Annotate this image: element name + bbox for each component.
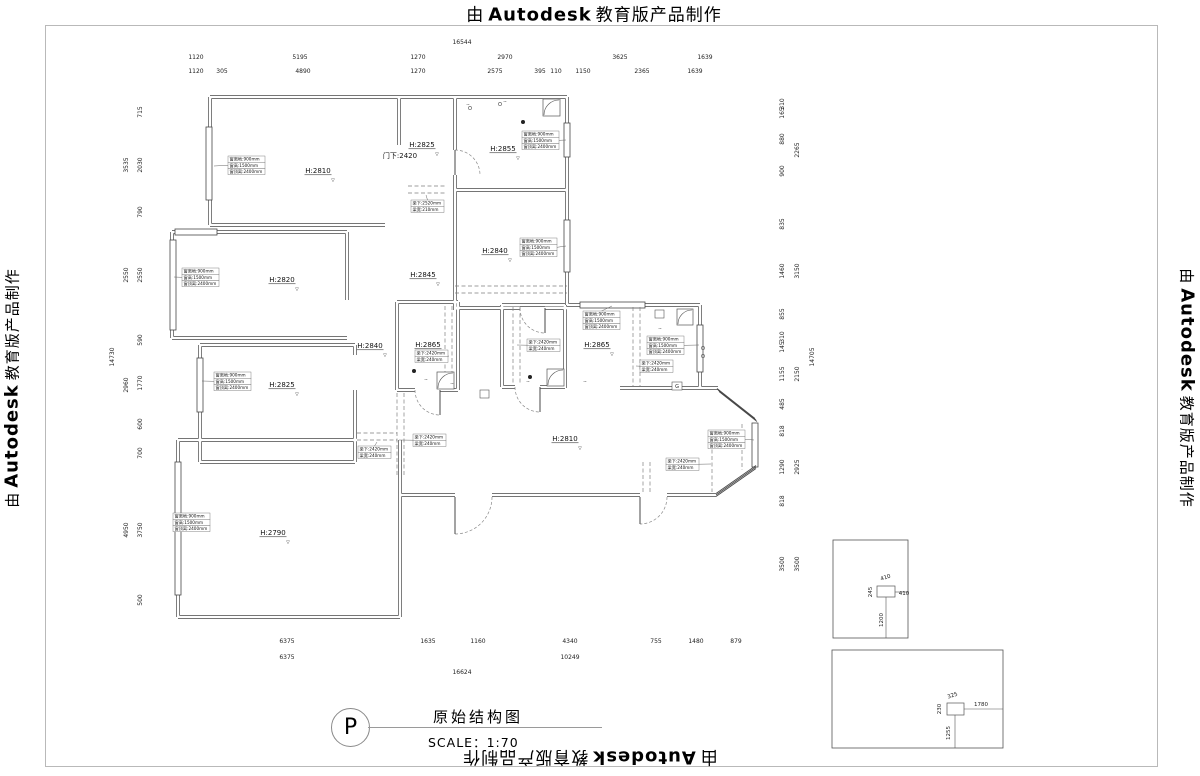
annotation-text: 梁宽:240mm xyxy=(642,366,668,373)
annotation-text: 窗离地:900mm xyxy=(216,372,246,379)
annotation-leader xyxy=(214,165,228,166)
[object Object] xyxy=(783,446,788,451)
[object Object] xyxy=(356,58,361,63)
dimension-label: 700 xyxy=(137,447,144,459)
[object Object] xyxy=(783,152,788,157)
fixture-mark: ~ xyxy=(658,327,662,332)
bay-window-line xyxy=(716,469,756,497)
annotation-text: 梁宽:240mm xyxy=(417,356,443,363)
door-swing-arc xyxy=(415,390,440,415)
annotation-text: 窗高:1500mm xyxy=(175,519,204,526)
detail-dimension-label: 1255 xyxy=(946,726,952,740)
bay-window-line xyxy=(716,467,756,495)
dimension-label: 879 xyxy=(730,638,742,645)
door-swing-arc xyxy=(520,308,545,333)
dimension-label: 1270 xyxy=(410,68,425,75)
annotation-text: 窗顶离:2400mm xyxy=(175,525,208,532)
[object Object] xyxy=(666,72,671,77)
elevation-mark: ▽ xyxy=(331,179,335,184)
dimension-label: 6375 xyxy=(279,654,294,661)
window xyxy=(752,423,758,467)
dimensions: 1654411205195127029703625163911203054890… xyxy=(109,39,819,679)
drawing-title: 原始结构图 xyxy=(433,706,523,727)
[object Object] xyxy=(798,208,803,213)
[object Object] xyxy=(206,72,211,77)
annotation-text: 窗高:1500mm xyxy=(710,436,739,443)
detail-inner-box xyxy=(947,703,964,715)
dimension-label: 855 xyxy=(779,308,786,320)
annotation-text: 梁宽:240mm xyxy=(415,440,441,447)
dimension-label: 2925 xyxy=(794,459,801,474)
dimension-label: 790 xyxy=(137,206,144,218)
[object Object] xyxy=(454,72,459,77)
[object Object] xyxy=(245,58,250,63)
dimension-label: 395 xyxy=(534,68,546,75)
dimension-label: 1635 xyxy=(420,638,435,645)
drawing-scale: SCALE：1:70 xyxy=(428,732,519,751)
room-height-label: H:2865 xyxy=(415,341,440,349)
annotation-text: 窗顶离:2400mm xyxy=(184,280,217,287)
dimension-label: 2365 xyxy=(634,68,649,75)
annotation-text: 窗离地:900mm xyxy=(710,430,740,437)
[object Object] xyxy=(127,217,132,222)
annotation-text: 窗顶离:2400mm xyxy=(524,143,557,150)
[object Object] xyxy=(141,436,146,441)
[object Object] xyxy=(783,290,788,295)
window xyxy=(170,240,176,330)
[object Object] xyxy=(798,418,803,423)
dimension-label: 6375 xyxy=(279,638,294,645)
room-height-label: H:2825 xyxy=(269,381,294,389)
bay-window-line xyxy=(716,466,756,494)
dimension-chain-top-row1: 112051951270297036251639 xyxy=(174,54,747,64)
[object Object] xyxy=(141,241,146,246)
dimension-label: 2150 xyxy=(794,366,801,381)
bay-window-line xyxy=(719,392,757,422)
dimension-chain-bottom-row2: 637510249 xyxy=(174,654,750,664)
[object Object] xyxy=(783,195,788,200)
annotation-text: 窗离地:900mm xyxy=(230,156,260,163)
dimension-chain-left-mid: 3535255029604950 xyxy=(123,97,133,617)
room-height-label: H:2840 xyxy=(357,342,382,350)
dimension-label: 900 xyxy=(779,165,786,177)
annotation-text: 窗离地:900mm xyxy=(649,336,679,343)
fixture-ring xyxy=(498,102,501,105)
[object Object] xyxy=(783,123,788,128)
[object Object] xyxy=(141,489,146,494)
[object Object] xyxy=(521,642,526,647)
[object Object] xyxy=(798,513,803,518)
[object Object] xyxy=(783,245,788,250)
annotation-text: 窗离地:900mm xyxy=(522,238,552,245)
[object Object] xyxy=(127,455,132,460)
dimension-label: 590 xyxy=(137,334,144,346)
dimension-label: 1120 xyxy=(188,54,203,61)
room-height-label: H:2825 xyxy=(409,141,434,149)
[object Object] xyxy=(783,415,788,420)
dimension-chain-left-total: 14730 xyxy=(109,97,119,617)
drain-dot xyxy=(528,375,532,379)
shower-basin xyxy=(543,99,560,116)
[object Object] xyxy=(141,359,146,364)
room-height-label: H:2790 xyxy=(260,529,285,537)
[object Object] xyxy=(358,72,363,77)
dimension-chain-top-total: 16544 xyxy=(174,39,715,49)
windows xyxy=(170,123,758,595)
dimension-label: 14705 xyxy=(809,347,816,366)
dimension-chain-bottom-row1: 63751635116043407551480879 xyxy=(174,638,750,648)
dimension-label: 2575 xyxy=(487,68,502,75)
fixture-mark: ~ xyxy=(424,378,428,383)
dimension-label: 1290 xyxy=(779,459,786,474)
dimension-label: 165 xyxy=(779,107,786,119)
annotation-text: 窗顶离:2400mm xyxy=(710,442,743,449)
annotation-leader xyxy=(426,195,428,200)
fixture-mark: ~ xyxy=(583,380,587,385)
annotation-text: 梁下:2420mm xyxy=(415,434,444,441)
dimension-label: 4950 xyxy=(123,522,130,537)
dimension-label: 485 xyxy=(779,398,786,410)
door-swing-arc xyxy=(640,497,667,524)
drain-dot xyxy=(412,369,416,373)
room-height-label: H:2855 xyxy=(490,145,515,153)
dimension-label: 500 xyxy=(137,594,144,606)
room-height-label: H:2810 xyxy=(305,167,330,175)
[object Object] xyxy=(610,72,615,77)
elevation-mark: ▽ xyxy=(578,447,582,452)
[object Object] xyxy=(610,642,615,647)
dimension-label: 4890 xyxy=(295,68,310,75)
[object Object] xyxy=(783,386,788,391)
detail-dimension-label: 1780 xyxy=(974,702,988,708)
shower-basin xyxy=(547,369,564,386)
dimension-label: 3500 xyxy=(779,556,786,571)
dimension-label: 880 xyxy=(779,133,786,145)
annotation-text: 窗离地:900mm xyxy=(524,131,554,138)
fixture-mark: ~ xyxy=(503,100,507,105)
title-symbol: P xyxy=(344,715,357,740)
fixture-mark: ~ xyxy=(450,382,454,387)
dimension-label: 818 xyxy=(779,495,786,507)
annotation-text: 梁宽:210mm xyxy=(413,206,439,213)
detail-dimension-label: 410 xyxy=(880,573,892,582)
annotation-text: 梁下:2420mm xyxy=(668,458,697,465)
annotation-text: 梁下:2420mm xyxy=(360,446,389,453)
detail-dimension-label: 325 xyxy=(947,691,959,700)
dimension-label: 3750 xyxy=(137,522,144,537)
meter-box xyxy=(655,310,664,318)
dimension-label: 1150 xyxy=(575,68,590,75)
meter-box xyxy=(480,390,489,398)
dimension-label: 145 xyxy=(779,341,786,353)
elevation-mark: ▽ xyxy=(286,541,290,546)
[object Object] xyxy=(141,186,146,191)
[object Object] xyxy=(141,136,146,141)
annotation-text: 梁宽:240mm xyxy=(529,345,555,352)
detail-inner-box xyxy=(877,586,895,597)
dimension-label: 1120 xyxy=(188,68,203,75)
[object Object] xyxy=(515,72,520,77)
[object Object] xyxy=(660,58,665,63)
meter-label: G xyxy=(675,384,679,390)
[object Object] xyxy=(450,642,455,647)
annotation-text: 窗顶离:2400mm xyxy=(216,384,249,391)
annotation-text: 窗高:1500mm xyxy=(649,342,678,349)
[object Object] xyxy=(459,58,464,63)
dimension-label: 2550 xyxy=(123,267,130,282)
dimension-label: 2550 xyxy=(137,267,144,282)
dimension-label: 715 xyxy=(137,106,144,118)
[object Object] xyxy=(567,72,572,77)
dimension-label: 16544 xyxy=(452,39,471,46)
dimension-chain-right-total: 14705 xyxy=(809,97,819,614)
annotation-text: 梁下:2420mm xyxy=(642,360,671,367)
elevation-mark: ▽ xyxy=(610,353,614,358)
[object Object] xyxy=(673,642,678,647)
door-height-label: 门下:2420 xyxy=(383,151,417,160)
room-height-label: H:2865 xyxy=(584,341,609,349)
annotation-text: 梁下:2420mm xyxy=(417,350,446,357)
cad-floor-plan-sheet: 由Autodesk教育版产品制作 由Autodesk教育版产品制作 由Autod… xyxy=(0,0,1200,776)
annotation-text: 窗顶离:2400mm xyxy=(649,348,682,355)
dimension-label: 310 xyxy=(779,331,786,343)
[object Object] xyxy=(798,320,803,325)
annotation-text: 窗高:1500mm xyxy=(184,274,213,281)
dimension-label: 1270 xyxy=(410,54,425,61)
door-swing-arc xyxy=(515,387,540,412)
[object Object] xyxy=(783,530,788,535)
[object Object] xyxy=(713,642,718,647)
dimension-label: 1770 xyxy=(137,375,144,390)
[object Object] xyxy=(260,72,265,77)
dimension-label: 3625 xyxy=(612,54,627,61)
annotation-text: 窗顶离:2400mm xyxy=(585,323,618,330)
fixture-mark: ~ xyxy=(526,380,530,385)
dimension-label: 755 xyxy=(650,638,662,645)
[object Object] xyxy=(141,305,146,310)
dimension-label: 3500 xyxy=(794,556,801,571)
elevation-mark: ▽ xyxy=(295,288,299,293)
[object Object] xyxy=(783,323,788,328)
[object Object] xyxy=(560,58,565,63)
dimension-label: 16624 xyxy=(452,669,471,676)
title-symbol-circle: P xyxy=(331,708,370,747)
dimension-label: 2030 xyxy=(137,157,144,172)
elevation-mark: ▽ xyxy=(295,393,299,398)
[object Object] xyxy=(141,562,146,567)
door-swing-arc xyxy=(455,497,492,534)
dimension-chain-bottom-total: 16624 xyxy=(174,669,750,679)
[object Object] xyxy=(141,401,146,406)
[object Object] xyxy=(426,658,431,663)
dimension-label: 3150 xyxy=(794,263,801,278)
dimension-label: 2265 xyxy=(794,142,801,157)
annotation-text: 窗离地:900mm xyxy=(585,311,615,318)
window xyxy=(697,325,703,372)
room-height-label: H:2845 xyxy=(410,271,435,279)
elevation-mark: ▽ xyxy=(383,354,387,359)
detail-dimension-label: 1200 xyxy=(879,613,885,627)
annotation-text: 窗高:1500mm xyxy=(524,137,553,144)
window xyxy=(197,358,203,412)
annotation-text: 窗高:1500mm xyxy=(230,162,259,169)
floor-plan-drawing: GG~~~~~~~1654411205195127029703625163911… xyxy=(0,0,1200,776)
annotation-text: 梁下:2520mm xyxy=(413,200,442,207)
elevation-mark: ▽ xyxy=(508,259,512,264)
dimension-label: 110 xyxy=(550,68,562,75)
dimension-label: 2960 xyxy=(123,377,130,392)
dimension-label: 5195 xyxy=(292,54,307,61)
dimension-label: 14730 xyxy=(109,347,116,366)
bay-window-line xyxy=(718,390,756,420)
detail-dimension-label: 245 xyxy=(868,586,874,597)
annotation-text: 梁宽:240mm xyxy=(668,464,694,471)
room-height-label: H:2810 xyxy=(552,435,577,443)
dimension-label: 818 xyxy=(779,425,786,437)
dimension-label: 1460 xyxy=(779,263,786,278)
annotation-text: 梁下:2420mm xyxy=(529,339,558,346)
bay-window-line xyxy=(717,389,755,419)
dimension-chain-top-row2: 1120305489012702575395110115023651639 xyxy=(174,68,747,78)
dimension-label: 3535 xyxy=(123,157,130,172)
shower-basin xyxy=(677,309,693,325)
dimension-label: 1155 xyxy=(779,366,786,381)
dimension-chain-left-detail: 7152030790255059017706007003750500 xyxy=(137,97,147,617)
annotation-text: 窗顶离:2400mm xyxy=(522,250,555,257)
[object Object] xyxy=(355,642,360,647)
drain-dot xyxy=(521,120,525,124)
window xyxy=(206,127,212,200)
window xyxy=(175,229,217,235)
dimension-label: 1160 xyxy=(470,638,485,645)
[object Object] xyxy=(783,358,788,363)
[object Object] xyxy=(783,481,788,486)
window xyxy=(580,302,645,308)
annotation-text: 窗高:1500mm xyxy=(216,378,245,385)
detail-dimension-label: 410 xyxy=(899,591,910,597)
room-height-label: H:2840 xyxy=(482,247,507,255)
detail-dimension-label: 230 xyxy=(937,703,943,714)
dimension-label: 4340 xyxy=(562,638,577,645)
annotation-text: 窗离地:900mm xyxy=(184,268,214,275)
dimension-chain-right-detail: 3101658809008351460855310145115548581812… xyxy=(779,97,789,614)
elevation-mark: ▽ xyxy=(435,153,439,158)
dimension-label: 1639 xyxy=(687,68,702,75)
[object Object] xyxy=(127,327,132,332)
dimension-label: 10249 xyxy=(560,654,579,661)
annotation-text: 梁宽:240mm xyxy=(360,452,386,459)
detail-figures: 410245410120032523017801255 xyxy=(832,540,1003,748)
door-swing-arc xyxy=(455,150,480,175)
annotation-text: 窗顶离:2400mm xyxy=(230,168,263,175)
annotation-text: 窗高:1500mm xyxy=(585,317,614,324)
title-underline xyxy=(368,727,602,728)
dimension-label: 1639 xyxy=(697,54,712,61)
dimension-label: 305 xyxy=(216,68,228,75)
dimension-label: 1480 xyxy=(688,638,703,645)
annotation-leader xyxy=(375,442,378,446)
detail-rect xyxy=(832,650,1003,748)
dimension-label: 2970 xyxy=(497,54,512,61)
dimension-label: 835 xyxy=(779,218,786,230)
dimension-chain-right-mid: 22653150215029253500 xyxy=(794,97,804,614)
dimension-label: 600 xyxy=(137,418,144,430)
elevation-mark: ▽ xyxy=(516,157,520,162)
annotation-text: 窗离地:900mm xyxy=(175,513,205,520)
fixture-mark: ~ xyxy=(466,103,470,108)
elevation-mark: ▽ xyxy=(436,283,440,288)
room-height-label: H:2820 xyxy=(269,276,294,284)
annotation-text: 窗高:1500mm xyxy=(522,244,551,251)
